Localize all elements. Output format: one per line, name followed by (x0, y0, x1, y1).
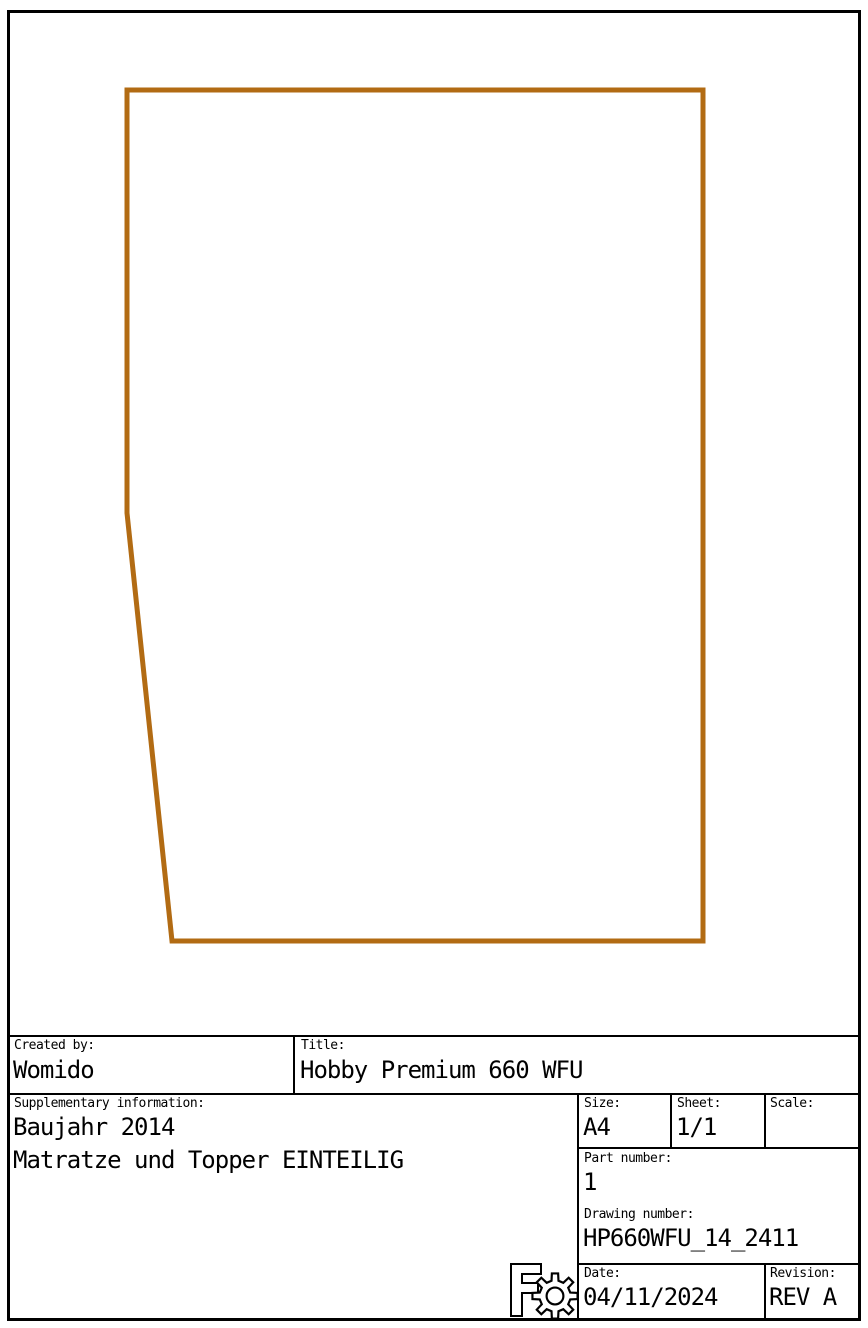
titleblock-row2-line (7, 1093, 861, 1095)
divider-date-revision (764, 1263, 766, 1321)
date-label: Date: (584, 1267, 621, 1281)
drawing-number-label: Drawing number: (584, 1208, 694, 1222)
size-value: A4 (583, 1115, 610, 1140)
title-label: Title: (301, 1039, 345, 1053)
divider-size-sheet (670, 1093, 672, 1147)
sheet-value: 1/1 (676, 1115, 716, 1140)
title-value: Hobby Premium 660 WFU (300, 1058, 582, 1083)
supplementary-line2: Matratze und Topper EINTEILIG (13, 1148, 403, 1173)
revision-value: REV A (769, 1285, 836, 1310)
sheet-label: Sheet: (677, 1097, 721, 1111)
date-value: 04/11/2024 (583, 1285, 718, 1310)
revision-label: Revision: (770, 1267, 836, 1281)
divider-suppl-right (577, 1093, 579, 1321)
size-label: Size: (584, 1097, 621, 1111)
part-number-value: 1 (583, 1170, 596, 1195)
part-number-label: Part number: (584, 1152, 672, 1166)
drawing-sheet: { "drawing": { "outline_points": "127,90… (0, 0, 868, 1328)
scale-label: Scale: (770, 1097, 814, 1111)
titleblock-top-line (7, 1035, 861, 1037)
titleblock-row3-line (577, 1147, 861, 1149)
titleblock-row4-line (577, 1263, 861, 1265)
supplementary-label: Supplementary information: (14, 1097, 205, 1111)
drawing-number-value: HP660WFU_14_2411 (583, 1226, 798, 1251)
created-by-label: Created by: (14, 1039, 95, 1053)
divider-createdby-title (293, 1035, 295, 1093)
divider-sheet-scale (764, 1093, 766, 1147)
supplementary-line1: Baujahr 2014 (13, 1115, 174, 1140)
created-by-value: Womido (13, 1058, 94, 1083)
